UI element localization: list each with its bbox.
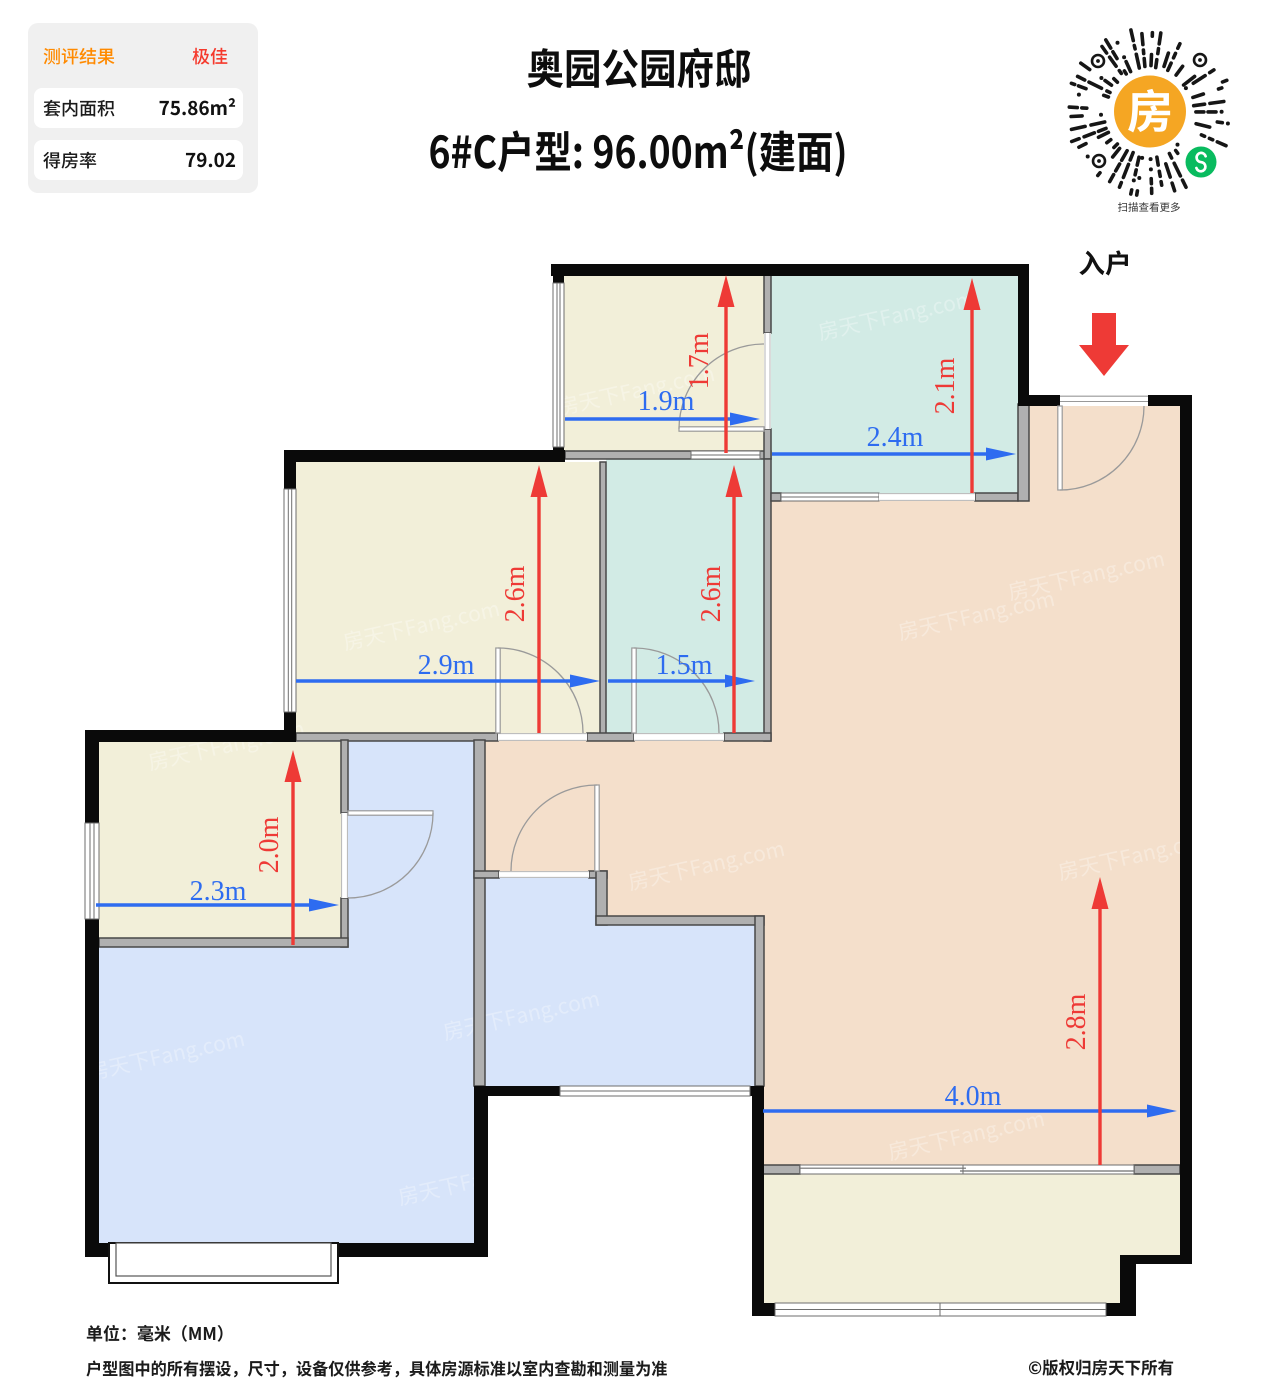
svg-text:1.9m: 1.9m	[638, 386, 695, 417]
svg-text:2.8m: 2.8m	[1061, 993, 1092, 1050]
svg-text:2.0m: 2.0m	[254, 816, 285, 873]
svg-text:2.4m: 2.4m	[867, 422, 924, 453]
svg-text:2.6m: 2.6m	[696, 565, 727, 622]
svg-text:2.3m: 2.3m	[190, 876, 247, 907]
svg-text:2.1m: 2.1m	[930, 357, 961, 414]
svg-text:1.7m: 1.7m	[684, 332, 715, 389]
svg-text:4.0m: 4.0m	[945, 1081, 1002, 1112]
svg-text:2.6m: 2.6m	[500, 565, 531, 622]
svg-text:1.5m: 1.5m	[656, 650, 713, 681]
svg-text:2.9m: 2.9m	[418, 650, 475, 681]
